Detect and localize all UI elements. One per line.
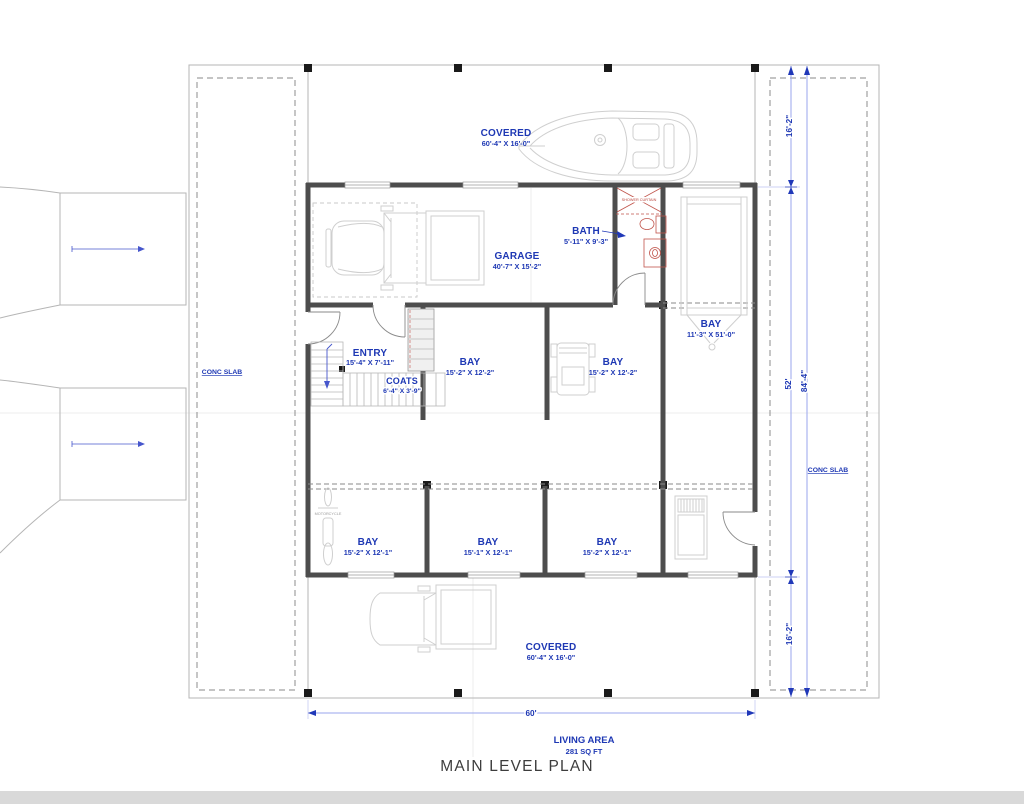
conc-slab-left-note: CONC SLAB (202, 369, 242, 376)
room-label-covered-top: COVERED (481, 128, 532, 139)
doors (308, 273, 755, 545)
dim-main-depth: 52' (784, 378, 793, 389)
room-label-bay-bottom-left: BAY (358, 537, 379, 548)
conc-slab-right-note: CONC SLAB (808, 467, 848, 474)
dim-porch-bottom-depth: 16'-2" (785, 623, 794, 645)
room-dims-bay-bottom-right: 15'-2" X 12'-1" (583, 548, 632, 557)
living-area-value: 281 SQ FT (566, 747, 603, 756)
room-dims-entry: 15'-4" X 7'-11" (346, 358, 394, 367)
room-label-bath: BATH (572, 226, 600, 237)
room-dims-bay-right: 11'-3" X 51'-0" (687, 330, 735, 339)
dim-overall-width: 60' (525, 709, 536, 718)
garage-truck-drawing (326, 206, 484, 290)
bed-drawing (675, 496, 707, 559)
page-bottom-band (0, 791, 1024, 804)
dimension-width: 60' (308, 700, 755, 719)
room-dims-covered-top: 60'-4" X 16'-0" (482, 139, 531, 148)
motorcycle-label: MOTORCYCLE (315, 512, 342, 516)
room-dims-coats: 6'-4" X 3'-9" (383, 388, 421, 395)
room-dims-bay-bottom-left: 15'-2" X 12'-1" (344, 548, 393, 557)
room-label-bay-mid-right: BAY (603, 357, 624, 368)
room-label-covered-bottom: COVERED (526, 642, 577, 653)
motorcycle-drawing: MOTORCYCLE (315, 488, 342, 565)
slope-arrow-top (72, 246, 145, 252)
room-dims-bay-bottom-center: 15'-1" X 12'-1" (464, 548, 513, 557)
boat-drawing (519, 111, 697, 181)
outer-slab-boundary (189, 65, 879, 698)
entry-shelf (408, 309, 434, 371)
room-label-coats: COATS (386, 376, 418, 386)
room-dims-bath: 5'-11" X 9'-3" (564, 237, 608, 246)
left-driveway-slabs (0, 187, 186, 553)
room-label-garage: GARAGE (494, 251, 539, 262)
room-label-bay-right: BAY (701, 319, 722, 330)
room-label-bay-bottom-right: BAY (597, 537, 618, 548)
shower-curtain-label: SHOWER CURTAIN (622, 198, 657, 202)
dimension-right: 16'-2" 52' 84'-4" 16'-2" (758, 66, 810, 697)
room-label-bay-bottom-center: BAY (478, 537, 499, 548)
dim-overall-depth: 84'-4" (800, 370, 809, 392)
page-title: MAIN LEVEL PLAN (440, 758, 594, 775)
floor-plan-page: MOTORCYCLE SHOWER CURTAIN COVERED 60'-4" (0, 0, 1024, 804)
slope-arrow-bottom (72, 441, 145, 447)
porch-truck-drawing (370, 585, 496, 652)
floor-plan-drawing: MOTORCYCLE SHOWER CURTAIN COVERED 60'-4" (0, 0, 1024, 804)
room-label-bay-mid-left: BAY (460, 357, 481, 368)
room-dims-bay-mid-right: 15'-2" X 12'-2" (589, 368, 638, 377)
room-dims-bay-mid-left: 15'-2" X 12'-2" (446, 368, 495, 377)
room-dims-garage: 40'-7" X 15'-2" (493, 262, 542, 271)
dim-porch-top-depth: 16'-2" (785, 115, 794, 137)
room-labels: COVERED 60'-4" X 16'-0" GARAGE 40'-7" X … (344, 128, 735, 662)
room-dims-covered-bottom: 60'-4" X 16'-0" (527, 653, 576, 662)
living-area-label: LIVING AREA (554, 735, 615, 746)
title-block: LIVING AREA 281 SQ FT MAIN LEVEL PLAN (440, 735, 614, 775)
